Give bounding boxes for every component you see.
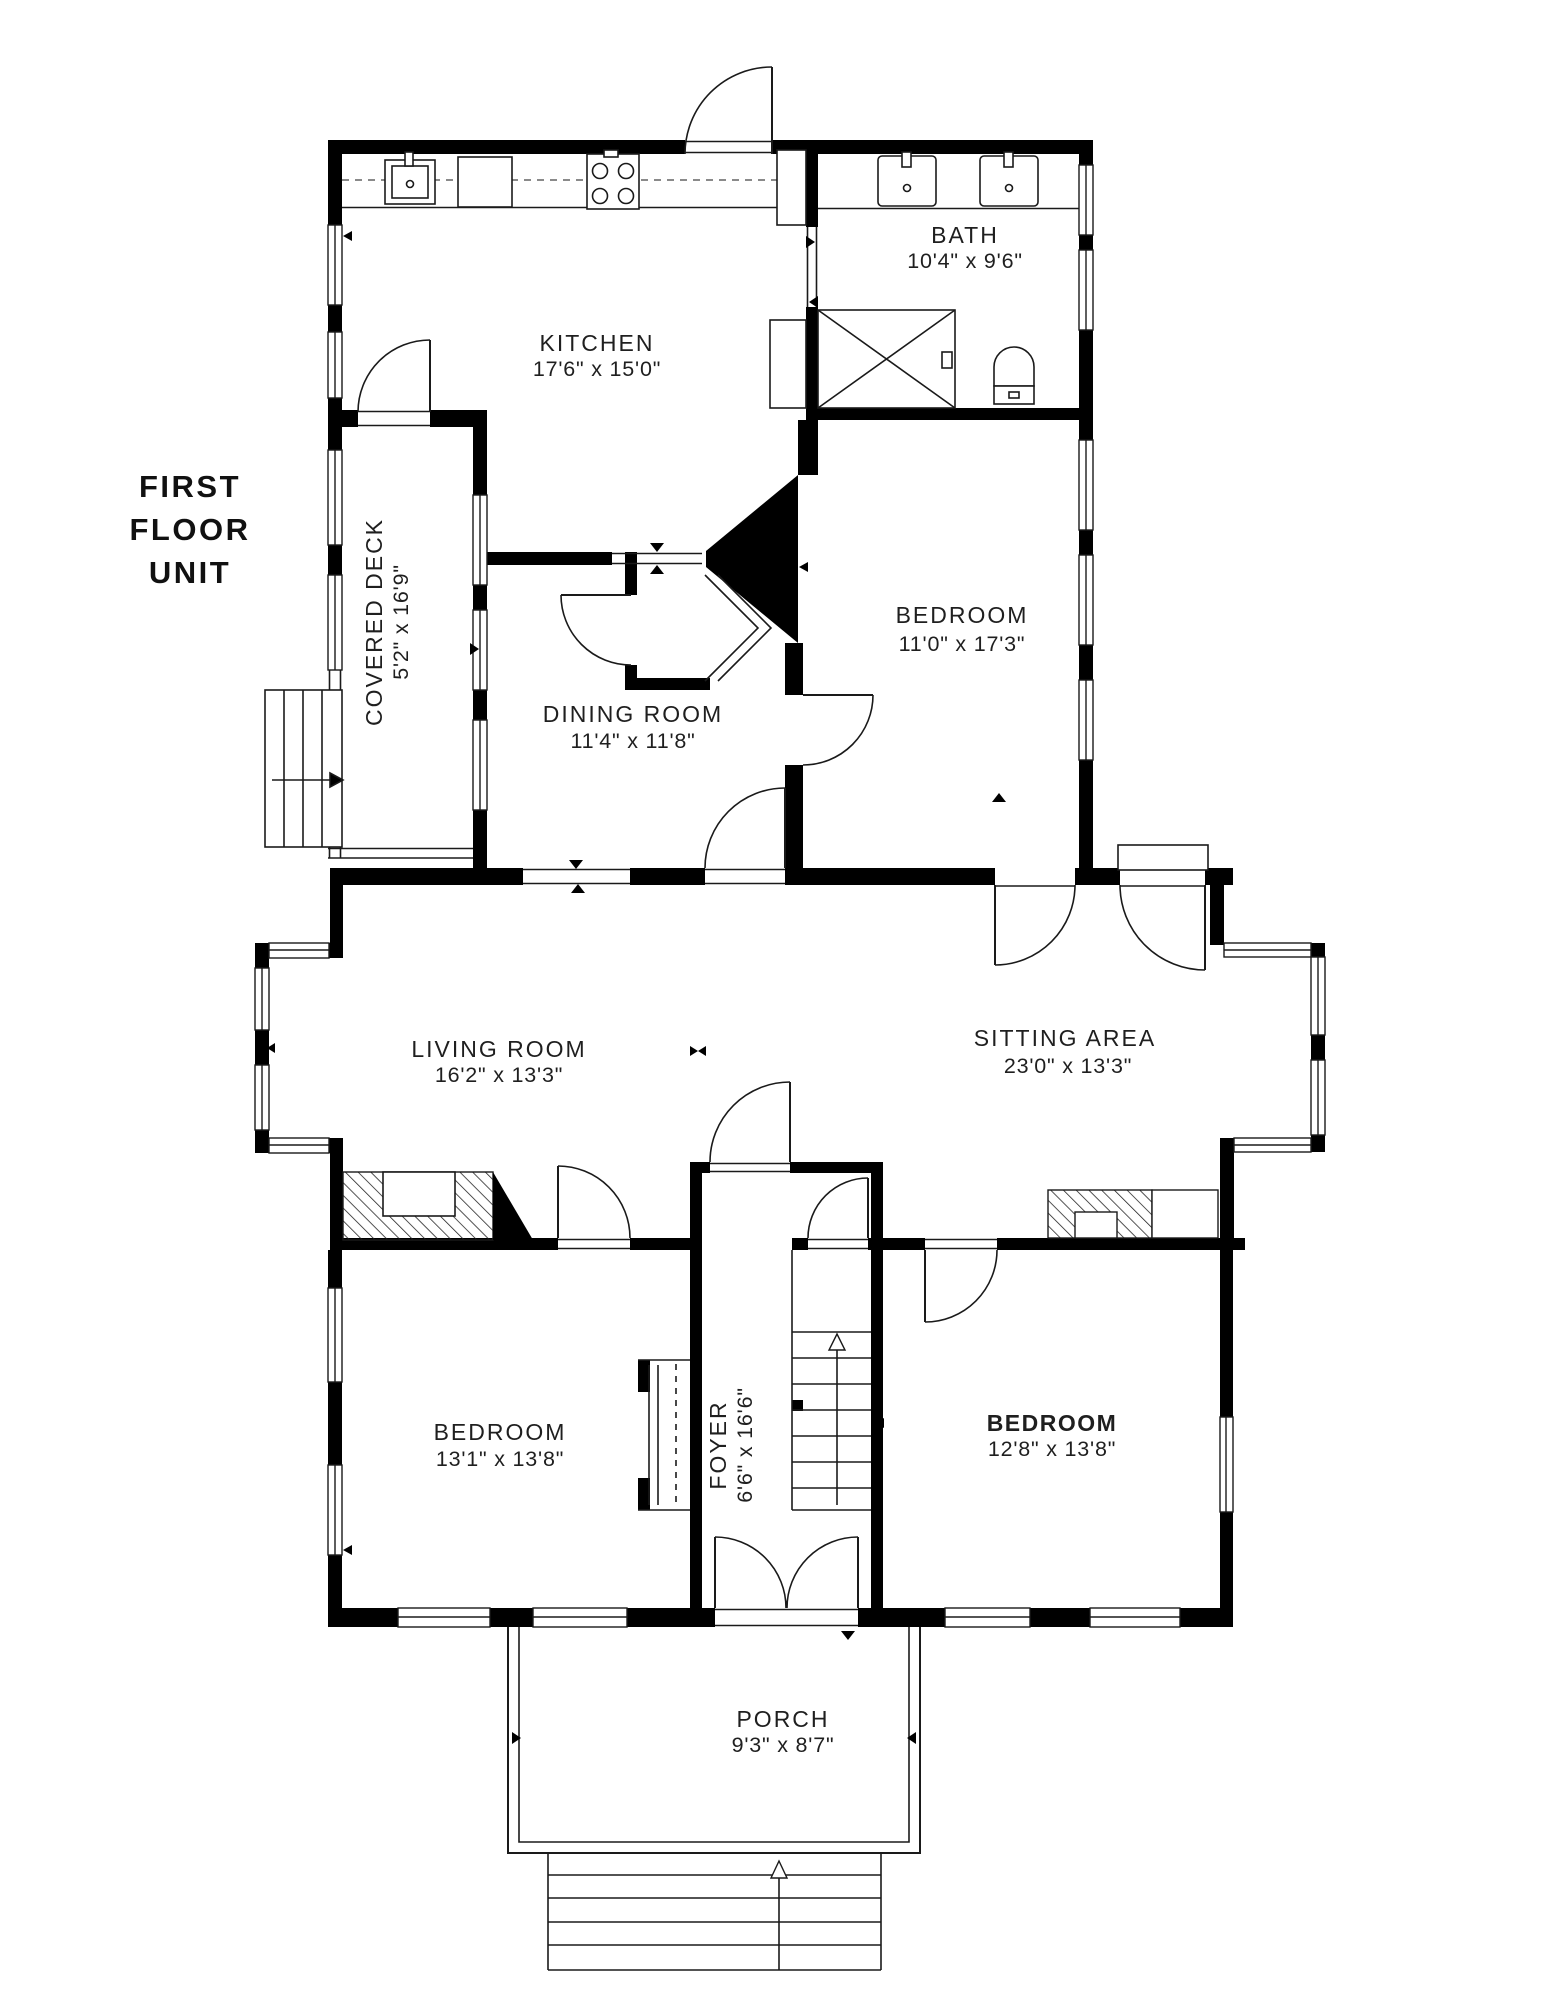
chimney bbox=[706, 475, 798, 643]
window bbox=[269, 1138, 329, 1153]
window bbox=[1079, 165, 1093, 235]
label-sitting-area: SITTING AREA 23'0" x 13'3" bbox=[974, 1025, 1156, 1078]
door-right-bedroom bbox=[925, 1250, 997, 1322]
label-kitchen: KITCHEN 17'6" x 15'0" bbox=[533, 330, 661, 381]
window bbox=[328, 450, 342, 545]
bath-vanity-sinks bbox=[818, 152, 1079, 209]
label-foyer: FOYER 6'6" x 16'6" bbox=[705, 1387, 757, 1503]
title-line-3: UNIT bbox=[149, 555, 231, 590]
main-staircase bbox=[792, 1250, 871, 1510]
window bbox=[473, 720, 487, 810]
room-name: COVERED DECK bbox=[361, 518, 387, 726]
window bbox=[328, 332, 342, 398]
window bbox=[269, 943, 329, 958]
room-name: PORCH bbox=[736, 1706, 829, 1732]
floor-plan-svg: FIRST FLOOR UNIT KITCHEN 17'6" x 15'0" B… bbox=[0, 0, 1545, 2000]
toilet bbox=[994, 347, 1034, 404]
room-dims: 9'3" x 8'7" bbox=[732, 1733, 835, 1757]
door-bedroom-sitting bbox=[995, 885, 1075, 965]
kitchen-sink bbox=[385, 152, 435, 204]
window bbox=[1224, 943, 1311, 957]
door-dining-sitting bbox=[705, 788, 785, 868]
page-title: FIRST FLOOR UNIT bbox=[130, 469, 251, 590]
label-bedroom-upper: BEDROOM 11'0" x 17'3" bbox=[896, 602, 1029, 656]
door-dining-hall bbox=[561, 595, 631, 665]
window bbox=[1079, 680, 1093, 760]
room-dims: 11'0" x 17'3" bbox=[899, 632, 1026, 656]
window bbox=[398, 1608, 490, 1627]
window bbox=[945, 1608, 1030, 1627]
label-bedroom-left: BEDROOM 13'1" x 13'8" bbox=[434, 1419, 567, 1471]
room-name: BEDROOM bbox=[434, 1419, 567, 1445]
label-living-room: LIVING ROOM 16'2" x 13'3" bbox=[411, 1036, 586, 1087]
window bbox=[328, 225, 342, 305]
window bbox=[328, 575, 342, 670]
window bbox=[1090, 1608, 1180, 1627]
door-rear-exterior bbox=[1120, 885, 1205, 970]
label-bath: BATH 10'4" x 9'6" bbox=[907, 222, 1023, 273]
title-line-1: FIRST bbox=[139, 469, 241, 504]
room-name: BEDROOM bbox=[896, 602, 1029, 628]
label-porch: PORCH 9'3" x 8'7" bbox=[732, 1706, 835, 1757]
dimension-markers bbox=[267, 231, 1006, 1744]
window bbox=[255, 968, 269, 1030]
window bbox=[1311, 1060, 1325, 1135]
window bbox=[328, 1288, 342, 1382]
room-dims: 13'1" x 13'8" bbox=[436, 1447, 564, 1471]
window bbox=[473, 495, 487, 585]
room-name: KITCHEN bbox=[540, 330, 655, 356]
door-left-bedroom bbox=[558, 1166, 630, 1238]
refrigerator-cabinet bbox=[770, 150, 806, 408]
room-dims: 17'6" x 15'0" bbox=[533, 357, 661, 381]
window bbox=[533, 1608, 627, 1627]
room-dims: 5'2" x 16'9" bbox=[389, 564, 413, 680]
floor-plan-page: FIRST FLOOR UNIT KITCHEN 17'6" x 15'0" B… bbox=[0, 0, 1545, 2000]
label-bedroom-right: BEDROOM 12'8" x 13'8" bbox=[987, 1410, 1118, 1461]
room-dims: 16'2" x 13'3" bbox=[435, 1063, 563, 1087]
window bbox=[1234, 1138, 1311, 1152]
room-dims: 6'6" x 16'6" bbox=[733, 1387, 757, 1503]
window bbox=[1079, 440, 1093, 530]
shower bbox=[818, 310, 955, 408]
room-name: DINING ROOM bbox=[543, 701, 723, 727]
porch-outline bbox=[508, 1627, 920, 1853]
door-staircase bbox=[808, 1178, 868, 1238]
room-dims: 23'0" x 13'3" bbox=[1004, 1054, 1132, 1078]
labels: FIRST FLOOR UNIT KITCHEN 17'6" x 15'0" B… bbox=[130, 222, 1157, 1757]
room-name: FOYER bbox=[705, 1400, 731, 1489]
title-line-2: FLOOR bbox=[130, 512, 251, 547]
label-dining-room: DINING ROOM 11'4" x 11'8" bbox=[543, 701, 723, 753]
entry-double-door bbox=[715, 1537, 858, 1608]
window bbox=[255, 1065, 269, 1130]
window bbox=[1220, 1417, 1233, 1512]
window bbox=[1079, 555, 1093, 645]
door-foyer-sitting bbox=[710, 1082, 790, 1162]
room-dims: 11'4" x 11'8" bbox=[570, 729, 695, 753]
room-name: BATH bbox=[931, 222, 999, 248]
rear-landing bbox=[1118, 845, 1208, 870]
window bbox=[328, 1465, 342, 1555]
sitting-area-fireplace bbox=[1048, 1190, 1218, 1238]
door-deck-kitchen bbox=[358, 340, 430, 412]
stove bbox=[587, 150, 639, 209]
door-upper-bedroom bbox=[803, 695, 873, 765]
room-name: BEDROOM bbox=[987, 1410, 1118, 1436]
room-name: LIVING ROOM bbox=[411, 1036, 586, 1062]
room-dims: 10'4" x 9'6" bbox=[907, 249, 1023, 273]
porch-steps bbox=[548, 1853, 881, 1970]
room-dims: 12'8" x 13'8" bbox=[988, 1437, 1116, 1461]
living-room-fireplace bbox=[343, 1172, 533, 1240]
label-covered-deck: COVERED DECK 5'2" x 16'9" bbox=[361, 518, 413, 726]
dishwasher bbox=[458, 157, 512, 207]
window bbox=[1311, 957, 1325, 1035]
window bbox=[1079, 250, 1093, 330]
room-name: SITTING AREA bbox=[974, 1025, 1156, 1051]
